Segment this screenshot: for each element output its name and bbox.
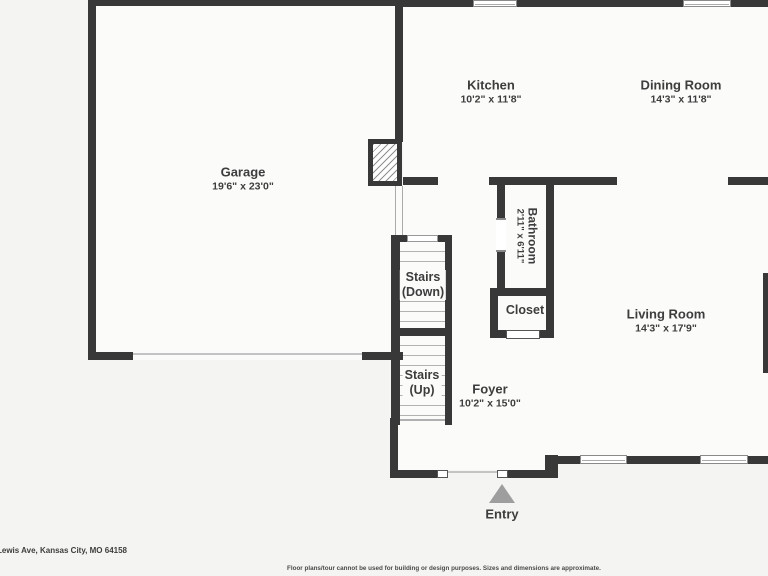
entry-opening-line — [448, 471, 497, 473]
wall-garage-right — [395, 0, 403, 142]
dining-room-name: Dining Room — [641, 78, 722, 94]
foyer-name: Foyer — [459, 382, 521, 398]
wall-bathroom-right — [546, 185, 554, 338]
wall-kitchen-stub — [403, 177, 438, 185]
stairs-down-label: Stairs (Down) — [400, 270, 446, 300]
window-living-1 — [580, 455, 627, 464]
fireplace-hatch — [368, 139, 402, 186]
disclaimer-text: Floor plans/tour cannot be used for buil… — [287, 565, 601, 572]
garage-name: Garage — [212, 165, 274, 181]
dining-room-label: Dining Room 14'3" x 11'8" — [641, 78, 722, 107]
foyer-dims: 10'2" x 15'0" — [459, 398, 521, 411]
wall-living-right — [763, 273, 768, 373]
living-room-dims: 14'3" x 17'9" — [627, 323, 706, 336]
garage-door-line — [133, 353, 362, 355]
hall-door-opening — [395, 186, 403, 235]
stairs-top-opening — [407, 235, 438, 242]
window-top-kitchen — [473, 0, 517, 7]
window-living-2 — [700, 455, 748, 464]
bathroom-dims: 2'11" x 6'11" — [515, 208, 526, 265]
entry-frame-right — [497, 470, 508, 478]
window-top-dining — [683, 0, 731, 7]
wall-bathroom-top — [489, 177, 617, 185]
bathroom-label: Bathroom 2'11" x 6'11" — [515, 208, 540, 265]
stairs-up-line1: Stairs — [403, 368, 442, 383]
kitchen-label: Kitchen 10'2" x 11'8" — [460, 78, 521, 107]
wall-foyer-bottom-left — [390, 470, 437, 478]
wall-bathroom-closet-divider — [497, 288, 554, 296]
closet-door-opening — [506, 330, 540, 339]
floor-plan: Garage 19'6" x 23'0" Kitchen 10'2" x 11'… — [0, 0, 768, 576]
wall-foyer-left — [390, 418, 398, 478]
entry-arrow-icon — [489, 484, 515, 503]
wall-top-garage — [88, 0, 403, 6]
address-text: Lewis Ave, Kansas City, MO 64158 — [0, 546, 127, 555]
entry-label: Entry — [485, 507, 518, 522]
garage-dims: 19'6" x 23'0" — [212, 181, 274, 194]
bathroom-name: Bathroom — [526, 208, 540, 265]
kitchen-dims: 10'2" x 11'8" — [460, 94, 521, 107]
foyer-label: Foyer 10'2" x 15'0" — [459, 382, 521, 411]
dining-room-dims: 14'3" x 11'8" — [641, 94, 722, 107]
living-room-name: Living Room — [627, 307, 706, 323]
stairs-up-label: Stairs (Up) — [403, 368, 442, 398]
closet-name: Closet — [506, 302, 544, 318]
wall-garage-left — [88, 0, 96, 360]
entry-frame-left — [437, 470, 448, 478]
stairs-down-line2: (Down) — [400, 285, 446, 300]
bathroom-door-opening — [496, 218, 506, 252]
kitchen-name: Kitchen — [460, 78, 521, 94]
living-room-label: Living Room 14'3" x 17'9" — [627, 307, 706, 336]
stairs-bottom-line — [400, 419, 445, 421]
stairs-up-line2: (Up) — [403, 383, 442, 398]
wall-dining-living-stub — [728, 177, 768, 185]
wall-stairs-middle — [391, 328, 452, 336]
stairs-down-line1: Stairs — [400, 270, 446, 285]
closet-label: Closet — [506, 302, 544, 318]
garage-label: Garage 19'6" x 23'0" — [212, 165, 274, 194]
